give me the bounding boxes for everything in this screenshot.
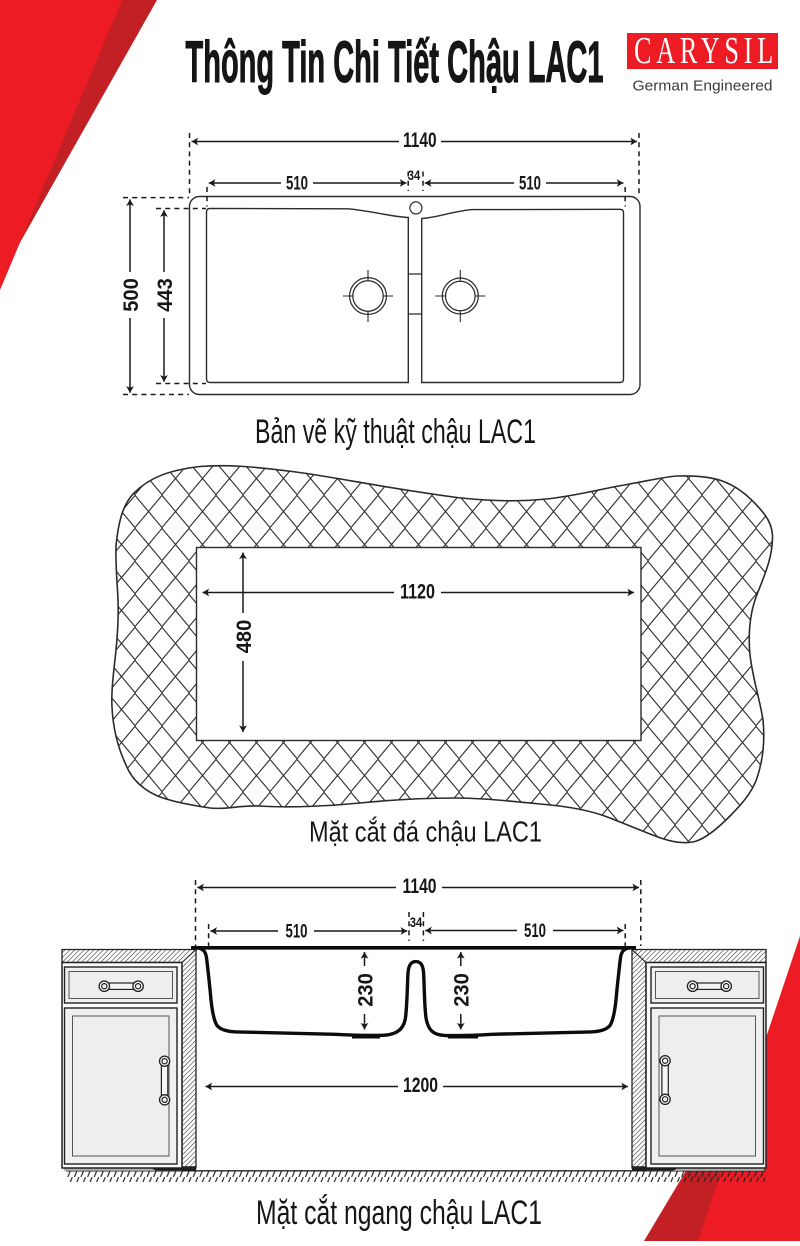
svg-text:480: 480 — [232, 620, 256, 654]
svg-text:500: 500 — [119, 278, 143, 312]
svg-text:230: 230 — [353, 973, 377, 1007]
svg-text:1140: 1140 — [403, 874, 437, 898]
svg-text:510: 510 — [286, 920, 308, 942]
svg-text:510: 510 — [519, 172, 541, 194]
svg-text:CARYSIL: CARYSIL — [634, 30, 778, 72]
svg-text:Mặt cắt ngang chậu LAC1: Mặt cắt ngang chậu LAC1 — [256, 1194, 542, 1232]
svg-text:34: 34 — [408, 168, 421, 183]
svg-text:1140: 1140 — [403, 128, 437, 152]
svg-text:510: 510 — [524, 920, 546, 942]
svg-text:1120: 1120 — [400, 579, 435, 603]
svg-text:510: 510 — [286, 172, 308, 194]
svg-text:1200: 1200 — [403, 1073, 438, 1097]
svg-text:German Engineered: German Engineered — [633, 78, 773, 95]
svg-text:230: 230 — [450, 973, 474, 1007]
svg-text:443: 443 — [153, 278, 177, 312]
svg-text:34: 34 — [410, 915, 423, 930]
svg-text:Mặt cắt đá chậu LAC1: Mặt cắt đá chậu LAC1 — [309, 816, 542, 849]
svg-text:Thông Tin Chi Tiết Chậu LAC1: Thông Tin Chi Tiết Chậu LAC1 — [186, 30, 604, 95]
svg-text:Bản vẽ kỹ thuật chậu LAC1: Bản vẽ kỹ thuật chậu LAC1 — [255, 413, 536, 451]
